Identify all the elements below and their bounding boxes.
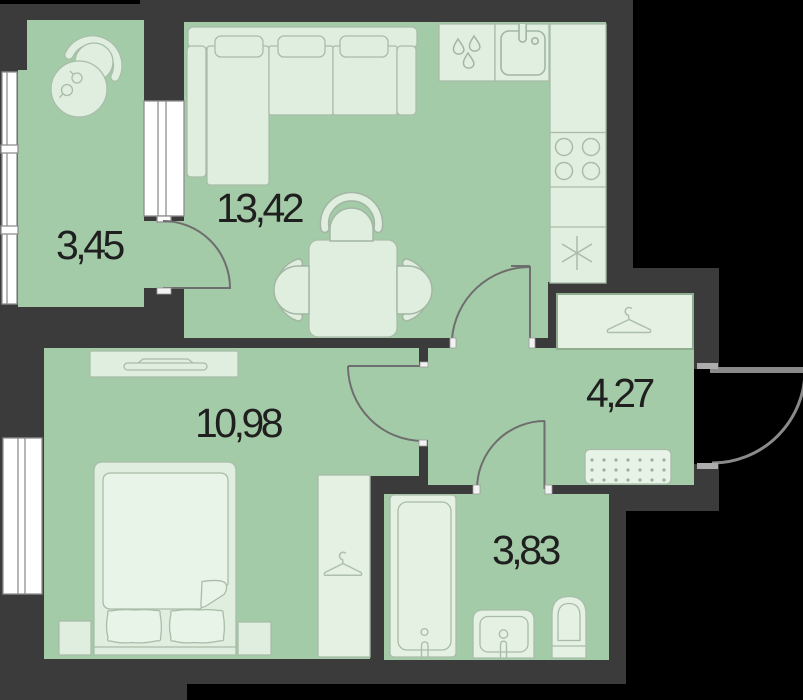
svg-text:10,98: 10,98 [195, 400, 283, 446]
svg-text:3,83: 3,83 [492, 527, 559, 573]
svg-text:13,42: 13,42 [216, 185, 303, 231]
svg-text:4,27: 4,27 [586, 370, 653, 416]
svg-text:3,45: 3,45 [56, 222, 124, 268]
